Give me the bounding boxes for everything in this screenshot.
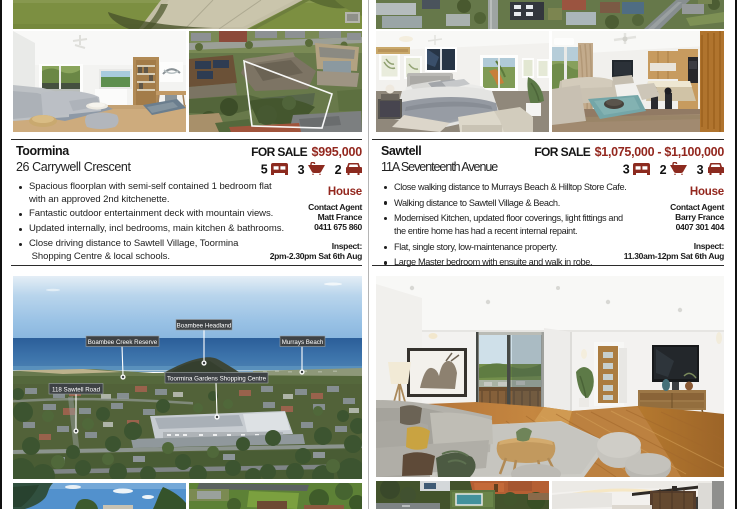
svg-text:118 Sawtell Road: 118 Sawtell Road — [52, 386, 101, 393]
svg-text:Murrays Beach: Murrays Beach — [282, 339, 324, 346]
svg-text:Toormina Gardens Shopping Cent: Toormina Gardens Shopping Centre — [167, 375, 267, 382]
svg-text:Boambee Creek Reserve: Boambee Creek Reserve — [88, 339, 158, 346]
svg-text:Boambee Headland: Boambee Headland — [177, 322, 232, 329]
